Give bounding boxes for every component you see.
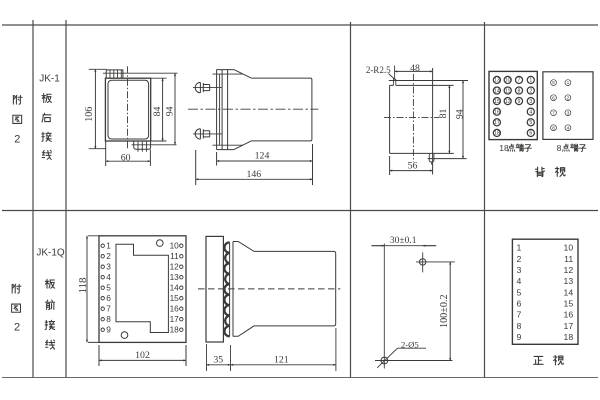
svg-text:3: 3 [106,262,111,272]
svg-text:1: 1 [567,80,570,86]
svg-text:18: 18 [494,131,500,137]
svg-text:7: 7 [106,304,111,314]
svg-text:100±0.2: 100±0.2 [439,294,450,328]
svg-text:18: 18 [499,143,509,153]
svg-text:17: 17 [494,120,500,126]
svg-text:16: 16 [170,304,180,314]
svg-text:7: 7 [552,110,555,116]
svg-text:6: 6 [552,95,555,101]
svg-text:8: 8 [518,88,521,94]
svg-text:11: 11 [505,88,510,94]
svg-text:8: 8 [557,143,562,153]
svg-text:13: 13 [564,276,574,286]
svg-text:94: 94 [454,109,465,119]
svg-text:84: 84 [152,107,163,117]
svg-text:14: 14 [564,287,574,297]
svg-text:6: 6 [529,131,532,137]
svg-text:56: 56 [408,160,418,171]
svg-text:12: 12 [505,99,511,105]
svg-text:4: 4 [106,272,111,282]
svg-text:12: 12 [564,265,574,275]
svg-text:14: 14 [494,88,500,94]
svg-text:11: 11 [170,251,179,261]
svg-text:8: 8 [517,321,522,331]
svg-text:8: 8 [552,125,555,131]
svg-text:6: 6 [106,293,111,303]
svg-text:18: 18 [170,325,180,335]
svg-text:2: 2 [14,134,20,146]
svg-text:124: 124 [255,151,270,162]
svg-text:14: 14 [170,283,180,293]
svg-text:7: 7 [517,310,522,320]
svg-text:30±0.1: 30±0.1 [390,236,417,246]
svg-text:6: 6 [517,299,522,309]
svg-text:10: 10 [170,241,180,251]
svg-text:5: 5 [552,80,555,86]
svg-text:2-R2.5: 2-R2.5 [366,65,391,75]
svg-text:1: 1 [529,78,532,84]
svg-text:4: 4 [517,276,522,286]
svg-text:5: 5 [529,120,532,126]
svg-text:15: 15 [494,99,500,105]
svg-text:3: 3 [517,265,522,275]
svg-text:2-Ø5: 2-Ø5 [401,339,419,349]
svg-text:12: 12 [170,262,180,272]
svg-text:15: 15 [564,299,574,309]
svg-text:60: 60 [121,152,131,163]
svg-text:JK-1: JK-1 [39,74,60,85]
svg-text:18: 18 [564,332,574,342]
svg-text:5: 5 [517,287,522,297]
svg-text:13: 13 [170,272,180,282]
svg-text:10: 10 [564,243,574,253]
svg-text:4: 4 [567,125,570,131]
svg-text:17: 17 [170,314,180,324]
svg-text:3: 3 [567,110,570,116]
svg-text:9: 9 [517,332,522,342]
svg-text:121: 121 [274,354,289,365]
svg-text:13: 13 [494,78,500,84]
svg-text:2: 2 [567,95,570,101]
svg-text:2: 2 [106,251,111,261]
svg-text:2: 2 [529,88,532,94]
svg-text:146: 146 [246,169,261,180]
svg-text:3: 3 [529,99,532,105]
svg-text:106: 106 [84,107,95,122]
svg-text:7: 7 [518,78,521,84]
svg-text:2: 2 [517,254,522,264]
svg-text:8: 8 [106,314,111,324]
svg-text:16: 16 [564,310,574,320]
svg-text:JK-1Q: JK-1Q [36,248,65,259]
svg-text:5: 5 [106,283,111,293]
svg-text:48: 48 [410,63,420,74]
svg-text:1: 1 [517,243,522,253]
svg-text:9: 9 [518,99,521,105]
svg-text:11: 11 [564,254,573,264]
svg-text:4: 4 [529,109,532,115]
svg-text:9: 9 [106,325,111,335]
svg-text:81: 81 [438,109,449,119]
svg-text:17: 17 [564,321,574,331]
svg-text:102: 102 [135,350,150,361]
svg-text:2: 2 [14,322,20,334]
svg-text:94: 94 [165,106,176,116]
svg-text:118: 118 [77,277,89,294]
svg-text:35: 35 [213,354,223,365]
svg-text:10: 10 [505,78,511,84]
svg-text:15: 15 [170,293,180,303]
svg-text:16: 16 [494,109,500,115]
svg-text:1: 1 [106,241,111,251]
